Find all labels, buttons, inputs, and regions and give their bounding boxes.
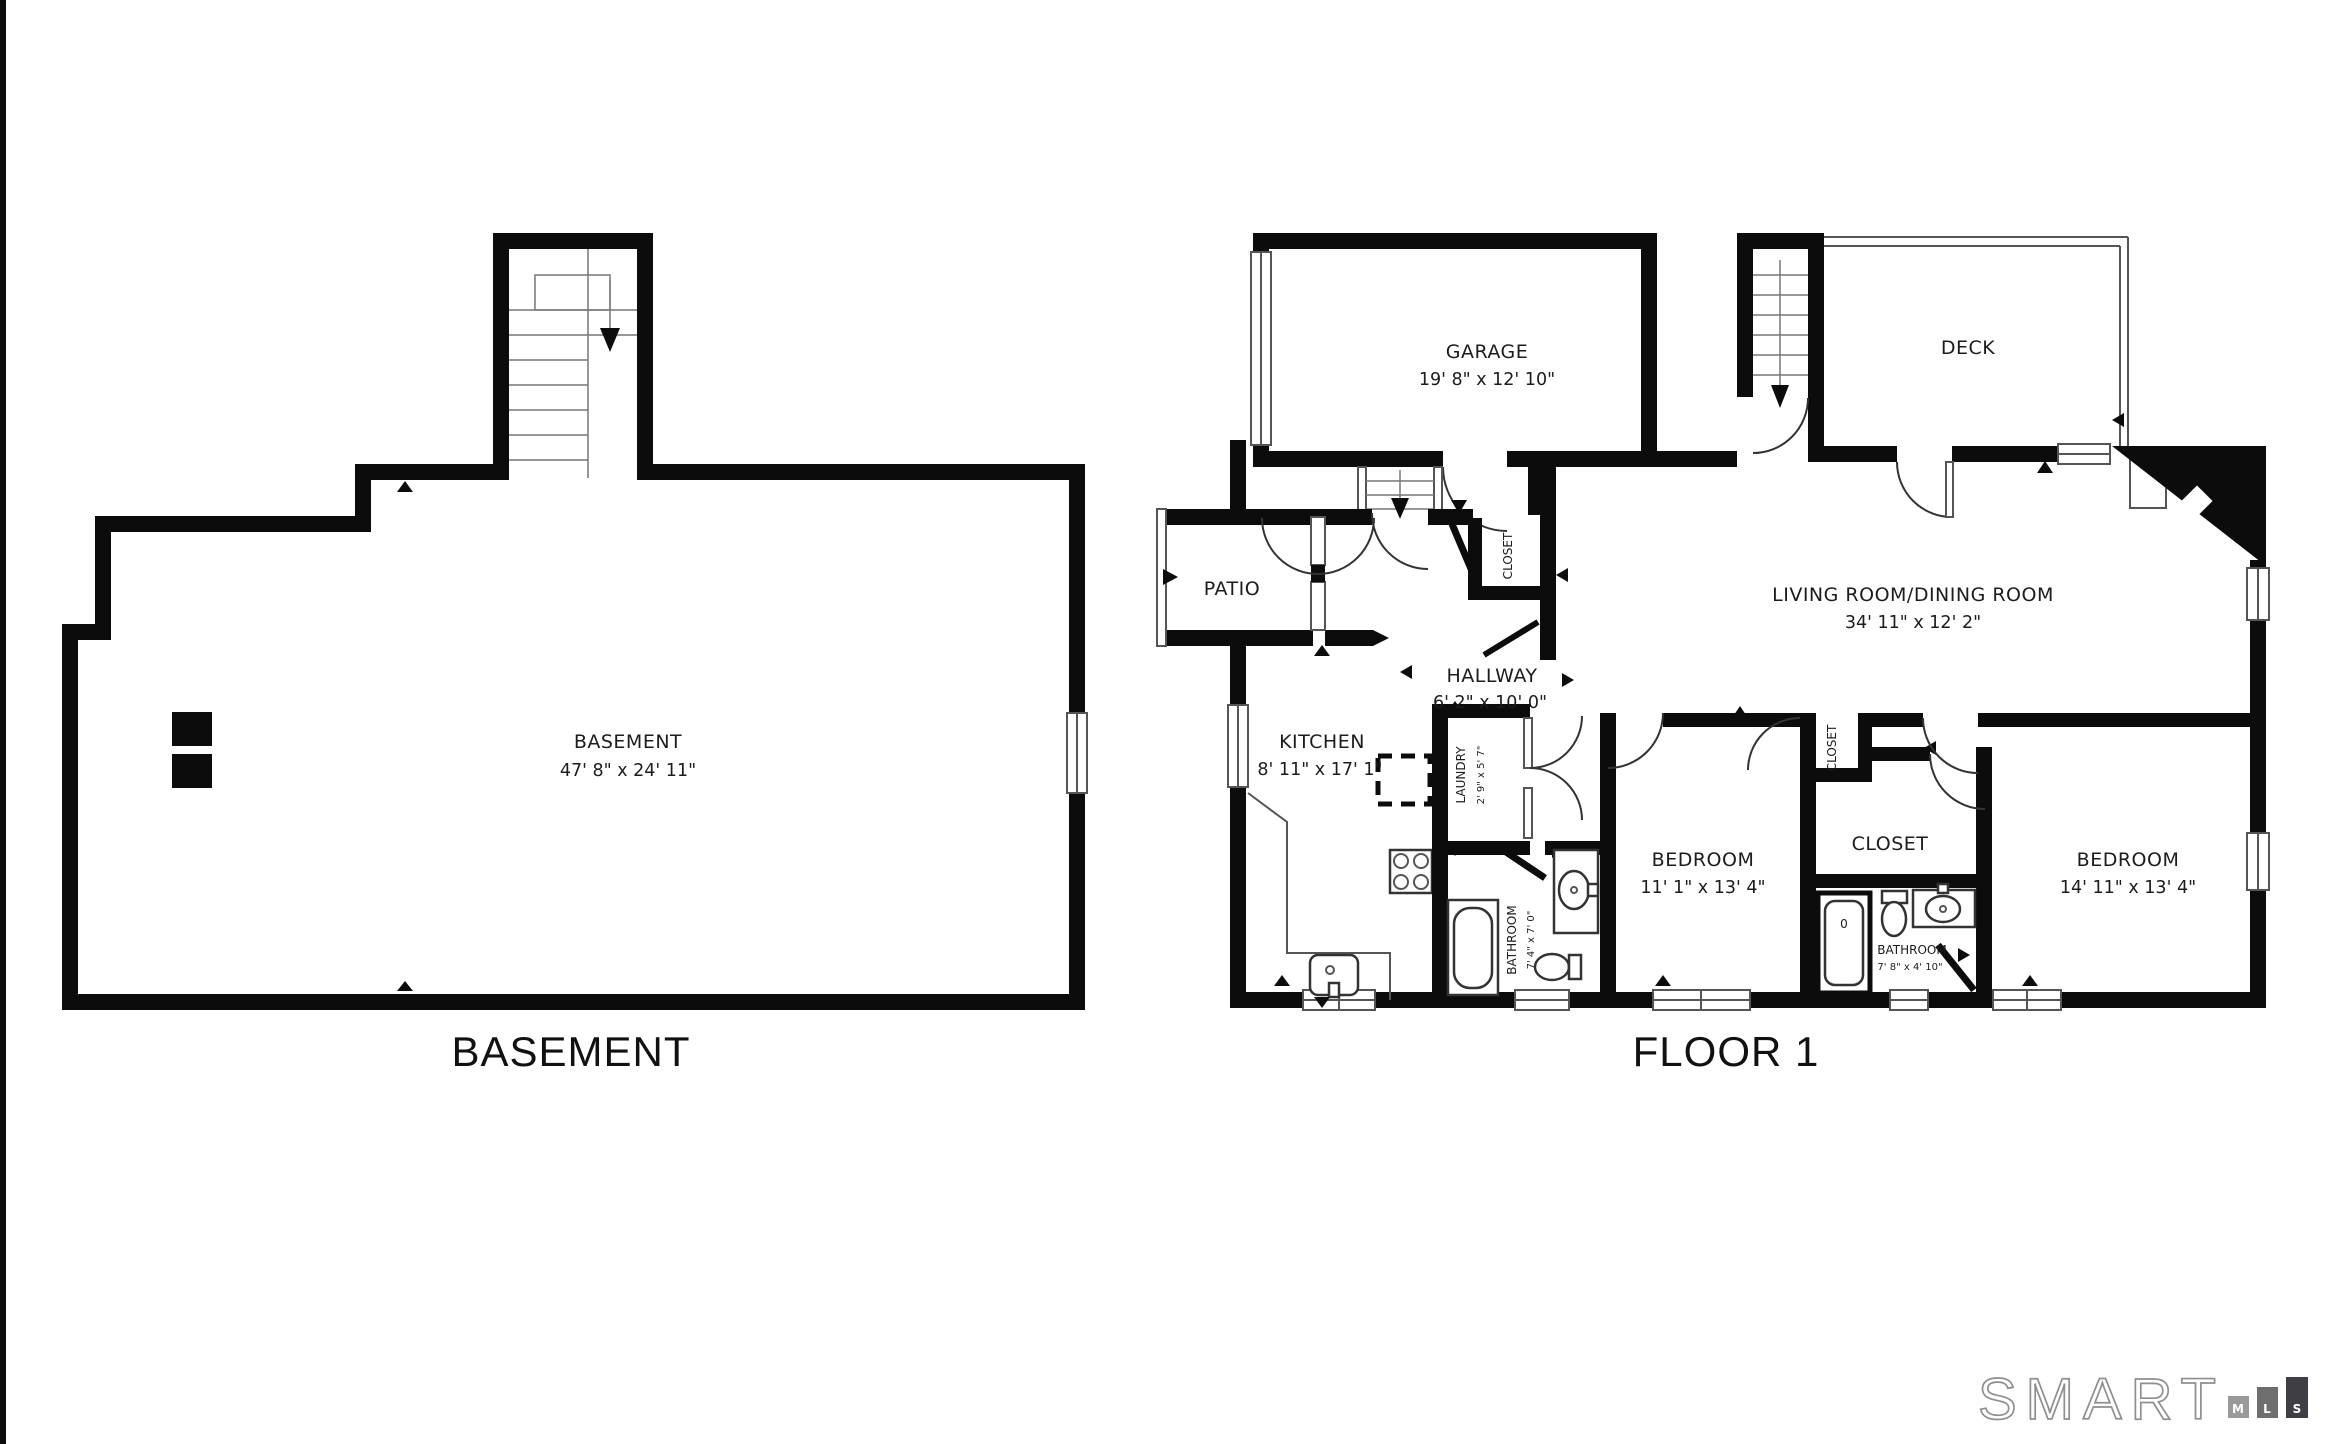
window	[2058, 444, 2110, 464]
stove	[1390, 850, 1432, 893]
floorplan-page: BASEMENT 47' 8" x 24' 11" BASEMENT GARAG…	[0, 0, 2330, 1444]
room-dims-laundry: 2' 9" x 5' 7"	[1476, 746, 1487, 805]
room-label-living: LIVING ROOM/DINING ROOM	[1772, 584, 2054, 606]
bathroom-main: BATHROOM 7' 4" x 7' 0"	[1448, 841, 1616, 995]
shower: 0	[1818, 893, 1870, 993]
stair-down-arrow-icon	[600, 328, 620, 352]
bedroom-right: BEDROOM 14' 11" x 13' 4"	[2060, 849, 2196, 898]
opening-marker-icon	[1274, 975, 1290, 986]
opening-marker-icon	[2037, 461, 2053, 473]
room-label-closet-center: CLOSET	[1852, 833, 1929, 855]
hall-closet: CLOSET	[1452, 467, 1568, 660]
patio: PATIO	[1157, 440, 1473, 656]
room-label-laundry: LAUNDRY	[1454, 746, 1468, 804]
deck-door	[1897, 462, 1952, 517]
opening-marker-icon	[1400, 665, 1412, 679]
room-dims-bathroom-main: 7' 4" x 7' 0"	[1526, 911, 1537, 970]
basement-plan: BASEMENT 47' 8" x 24' 11"	[62, 233, 1087, 1010]
deck: DECK	[1824, 237, 2166, 508]
room-dims-bedroom-left: 11' 1" x 13' 4"	[1640, 878, 1765, 898]
logo-letter-m: M	[2232, 1402, 2244, 1416]
opening-marker-icon	[2112, 413, 2124, 427]
opening-marker-icon	[1562, 673, 1574, 687]
window	[2247, 568, 2269, 620]
logo-wordmark: SMART	[1978, 1367, 2225, 1432]
floorplan-drawing: BASEMENT 47' 8" x 24' 11" BASEMENT GARAG…	[0, 0, 2330, 1444]
room-label-deck: DECK	[1941, 337, 1995, 359]
window	[1993, 990, 2061, 1010]
east-wall	[2247, 560, 2269, 1008]
opening-marker-icon	[1732, 706, 1748, 718]
room-label-basement: BASEMENT	[574, 731, 682, 753]
patio-french-door	[1262, 517, 1374, 630]
garage: GARAGE 19' 8" x 12' 10"	[1251, 233, 1737, 531]
opening-marker-icon	[397, 481, 413, 492]
opening-marker-icon	[1556, 568, 1568, 582]
room-dims-bathroom-small: 7' 8" x 4' 10"	[1877, 962, 1942, 973]
support-post	[172, 754, 212, 788]
room-label-hallway: HALLWAY	[1446, 665, 1537, 687]
opening-marker-icon	[1373, 630, 1389, 646]
bathroom-small: 0 BATHROOM 7' 8" x 4' 10"	[1818, 884, 1975, 993]
support-post	[172, 712, 212, 746]
room-label-closet-hall: CLOSET	[1501, 532, 1515, 579]
opening-marker-icon	[397, 981, 413, 991]
opening-marker-icon	[1163, 569, 1178, 585]
deck-stairwell	[1737, 233, 1824, 462]
toilet	[1535, 954, 1581, 980]
bedroom-left: BEDROOM 11' 1" x 13' 4"	[1608, 706, 1766, 898]
opening-marker-icon	[1958, 948, 1970, 962]
room-label-bedroom-right: BEDROOM	[2077, 849, 2180, 871]
stair-down-arrow-icon	[1771, 385, 1789, 408]
room-label-closet-bedroom: CLOSET	[1825, 724, 1839, 771]
room-dims-basement: 47' 8" x 24' 11"	[560, 761, 696, 781]
room-dims-kitchen: 8' 11" x 17' 1"	[1257, 760, 1382, 780]
room-label-patio: PATIO	[1204, 578, 1260, 600]
window	[1515, 990, 1569, 1010]
opening-marker-icon	[1314, 645, 1330, 656]
window	[1228, 705, 1248, 787]
room-label-bathroom-small: BATHROOM	[1877, 943, 1946, 957]
living-room-north-wall	[1824, 444, 2266, 566]
wall-stub	[1528, 467, 1544, 515]
living-room: LIVING ROOM/DINING ROOM 34' 11" x 12' 2"	[1772, 584, 2054, 633]
floor1-plan: GARAGE 19' 8" x 12' 10"	[1157, 233, 2269, 1010]
floor1-title: FLOOR 1	[1633, 1028, 1820, 1075]
bedroom-door	[1608, 713, 1663, 768]
garage-door	[1251, 252, 1271, 445]
room-dims-bedroom-right: 14' 11" x 13' 4"	[2060, 878, 2196, 898]
logo-letter-l: L	[2263, 1402, 2271, 1416]
room-label-bathroom-main: BATHROOM	[1505, 905, 1519, 974]
logo-letter-s: S	[2293, 1402, 2302, 1416]
toilet	[1882, 891, 1907, 936]
basement-title: BASEMENT	[451, 1028, 690, 1075]
bathroom-sink	[1913, 884, 1975, 927]
room-label-garage: GARAGE	[1446, 341, 1529, 363]
bathtub	[1448, 900, 1498, 995]
entry-door	[1372, 513, 1428, 569]
room-dims-garage: 19' 8" x 12' 10"	[1419, 370, 1555, 390]
basement-stairs	[509, 249, 637, 478]
closet-door	[1484, 622, 1538, 655]
room-label-bedroom-left: BEDROOM	[1652, 849, 1755, 871]
room-dims-hallway: 6' 2" x 10' 0"	[1433, 693, 1547, 713]
opening-marker-icon	[2022, 975, 2038, 986]
room-dims-living: 34' 11" x 12' 2"	[1845, 613, 1981, 633]
window	[1653, 990, 1750, 1010]
page-left-border	[0, 0, 6, 1444]
opening-marker-icon	[1655, 975, 1671, 986]
bathroom-sink	[1554, 850, 1598, 933]
smartmls-logo: SMART M L S	[1978, 1367, 2308, 1432]
kitchen: KITCHEN 8' 11" x 17' 1"	[1228, 646, 1432, 1008]
basement-window-right	[1067, 713, 1087, 793]
hallway: HALLWAY 6' 2" x 10' 0"	[1400, 665, 1574, 713]
window	[1890, 990, 1928, 1010]
window	[2247, 833, 2269, 890]
south-wall	[1230, 975, 2266, 1010]
room-label-kitchen: KITCHEN	[1279, 731, 1365, 753]
kitchen-island-dashed	[1378, 756, 1430, 804]
shower-mark: 0	[1840, 917, 1848, 931]
